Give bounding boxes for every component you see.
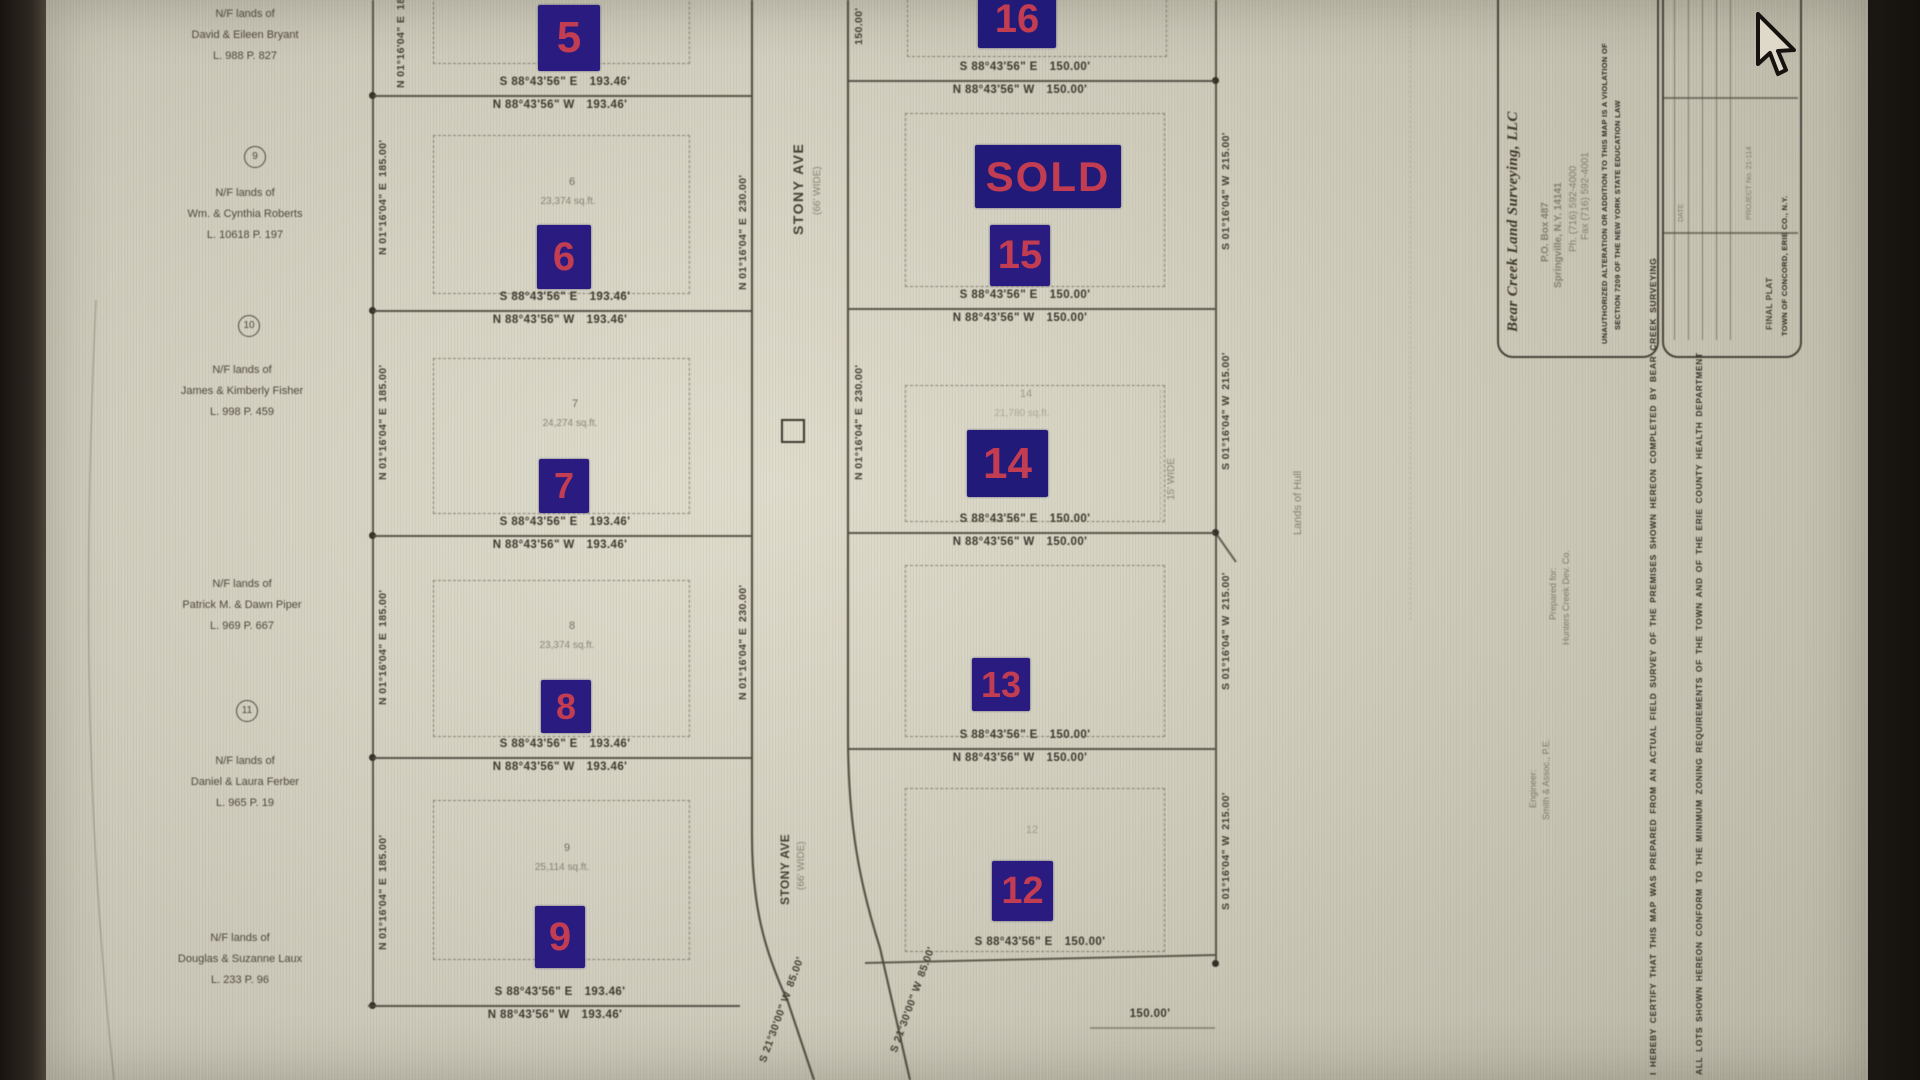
- lot-marker-16[interactable]: 16: [978, 0, 1056, 48]
- lot-marker-label: 5: [557, 13, 581, 63]
- lot-marker-9[interactable]: 9: [535, 906, 585, 968]
- lot-marker-13[interactable]: 13: [972, 658, 1030, 711]
- lot-marker-label: 15: [998, 233, 1043, 278]
- lot-marker-label: 13: [981, 664, 1021, 706]
- lot-marker-6[interactable]: 6: [537, 225, 591, 289]
- lot-marker-label: 7: [554, 465, 574, 507]
- lot-marker-label: 16: [995, 0, 1040, 42]
- screen-bezel-right: [1868, 0, 1920, 1080]
- lot-marker-label: 9: [549, 915, 571, 960]
- lot-marker-7[interactable]: 7: [539, 459, 589, 513]
- lot-marker-8[interactable]: 8: [541, 680, 591, 733]
- sold-marker[interactable]: SOLD: [975, 145, 1121, 208]
- photographed-screen: S 88°43'56" E 193.46' N 88°43'56" W 193.…: [0, 0, 1920, 1080]
- sold-marker-label: SOLD: [986, 153, 1111, 201]
- lot-annotation-layer: 5 6 7 8 9 16 SOLD 15 14 13 12: [0, 0, 1920, 1080]
- lot-marker-label: 8: [556, 686, 576, 728]
- lot-marker-14[interactable]: 14: [967, 430, 1048, 497]
- cursor-arrow-shape: [1758, 14, 1794, 74]
- mouse-cursor: [1750, 12, 1810, 92]
- lot-marker-12[interactable]: 12: [992, 861, 1053, 921]
- lot-marker-label: 6: [553, 235, 575, 280]
- lot-marker-5[interactable]: 5: [538, 5, 600, 71]
- lot-marker-label: 14: [983, 439, 1032, 489]
- lot-marker-15[interactable]: 15: [990, 225, 1050, 286]
- lot-marker-label: 12: [1001, 870, 1043, 913]
